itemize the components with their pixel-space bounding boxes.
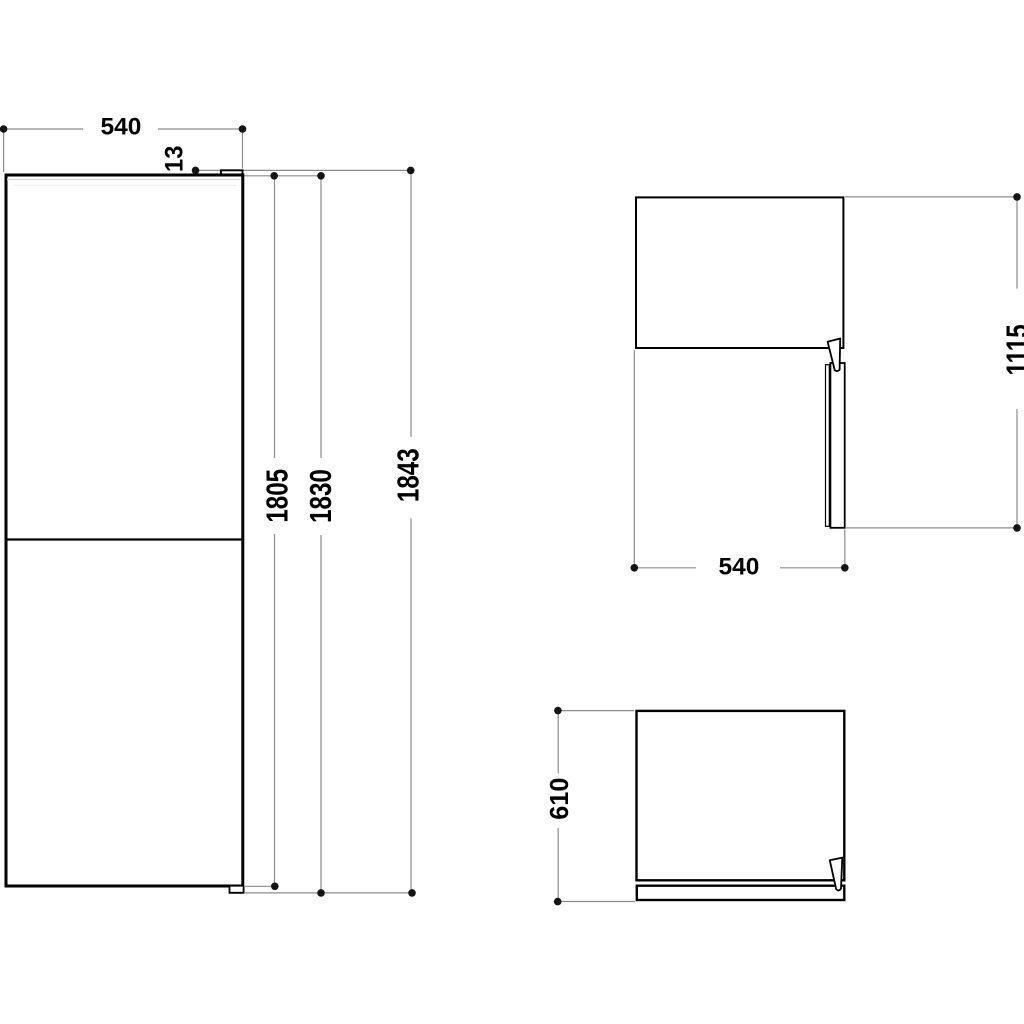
svg-text:610: 610 [546, 778, 574, 820]
svg-text:1830: 1830 [303, 469, 338, 523]
svg-text:13: 13 [161, 146, 189, 172]
svg-text:1805: 1805 [259, 469, 294, 523]
svg-text:1843: 1843 [391, 448, 426, 502]
svg-text:540: 540 [719, 553, 760, 580]
svg-text:1115: 1115 [1000, 324, 1024, 375]
svg-text:540: 540 [101, 114, 142, 141]
